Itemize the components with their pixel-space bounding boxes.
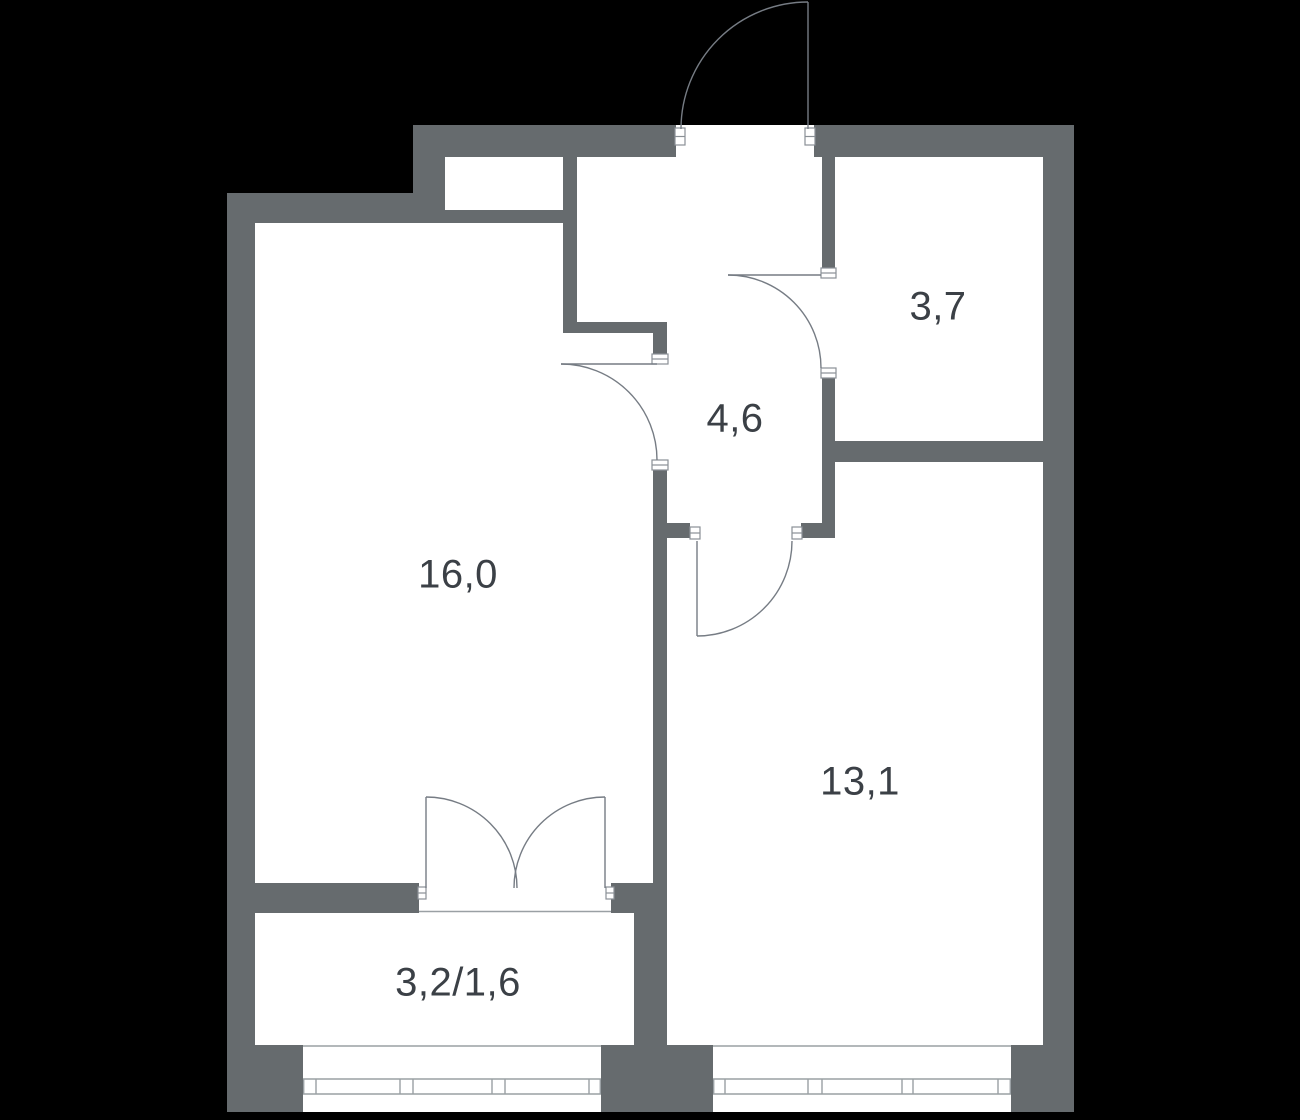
room-label-balcony: 3,2/1,6 [395, 961, 521, 1006]
floor-plan-drawing [0, 0, 1300, 1120]
floor-plan: 16,0 4,6 3,7 13,1 3,2/1,6 [0, 0, 1300, 1120]
room-label-living-room: 16,0 [418, 553, 498, 598]
room-label-hallway: 4,6 [706, 397, 763, 442]
entrance-door [681, 2, 808, 129]
room-label-bedroom: 13,1 [820, 760, 900, 805]
room-label-bathroom: 3,7 [909, 285, 966, 330]
